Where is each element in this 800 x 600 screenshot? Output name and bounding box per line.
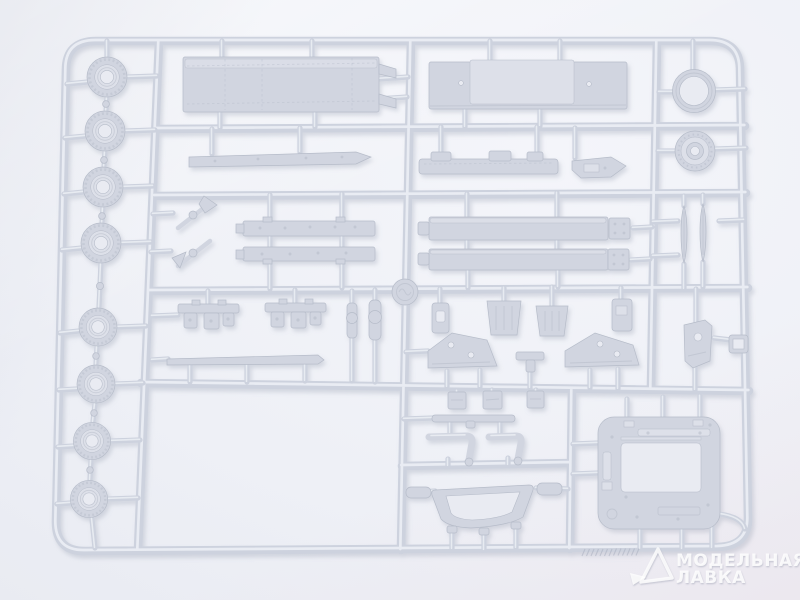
wheel-hub [675,131,715,171]
small-blocks [448,391,544,409]
flat-deck-panel [183,57,396,112]
road-wheel-5 [79,308,117,346]
narrow-blades [681,204,706,263]
suspension-bogie-1 [178,300,239,329]
small-bracket [432,303,449,333]
side-strip-2 [236,247,375,264]
road-wheel-6 [77,365,115,403]
road-wheel-1 [87,57,127,97]
road-wheel-4 [81,223,121,263]
sprue-drawing: МОДЕЛЬНАЯ ЛАВКА [0,0,800,600]
suspension-bogie-2 [265,299,326,328]
mount-bracket [684,320,748,368]
small-plate [612,299,632,331]
small-vertical-links [347,300,382,340]
chassis-rail [419,151,558,174]
fender-strip [189,152,371,167]
superstructure-box [429,60,627,109]
sprue-frame [55,40,749,556]
grille-bracket-1 [487,301,521,335]
road-wheel-2 [85,111,125,151]
tool-parts [172,196,217,268]
road-wheel-8 [70,480,107,517]
panel-tab [379,64,396,78]
glacis-wedge [572,157,626,178]
axle-rod [167,355,324,365]
center-gate-hub [392,279,418,305]
grille-bracket-2 [536,306,568,336]
triangular-plate-2 [565,333,639,367]
sprue-photo: МОДЕЛЬНАЯ ЛАВКА [0,0,800,600]
road-wheel-column [70,57,127,518]
road-wheel-7 [73,422,110,459]
road-wheel-3 [83,167,123,207]
triangular-plate-1 [428,333,497,368]
watermark: МОДЕЛЬНАЯ ЛАВКА [630,549,800,588]
large-ring [673,70,716,113]
hull-side-slab-2 [418,249,629,270]
t-part [516,352,544,372]
watermark-line2: ЛАВКА [676,568,746,588]
side-strip-1 [236,217,375,236]
hatch-frame [598,417,720,529]
hull-tub-frame [406,483,562,535]
hull-side-slab-1 [418,217,630,240]
